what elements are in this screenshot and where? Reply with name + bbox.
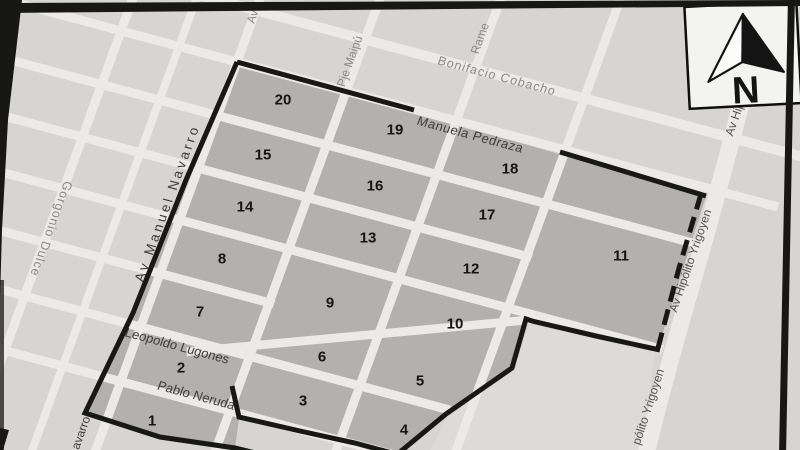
compass: N: [684, 1, 800, 115]
zone-number-18: 18: [502, 161, 519, 178]
map-canvas: Bonifacio Cobacho Manuela Pedraza Leopol…: [0, 0, 800, 450]
zone-number-11: 11: [613, 248, 629, 265]
zone-number-7: 7: [196, 304, 204, 321]
zone-number-13: 13: [360, 230, 377, 247]
photo-edge-left-lower: [0, 280, 4, 450]
zone-number-14: 14: [237, 199, 254, 216]
zone-number-15: 15: [255, 147, 272, 164]
zone-number-16: 16: [367, 178, 384, 195]
zone-number-20: 20: [275, 92, 292, 109]
zone-number-17: 17: [479, 207, 496, 224]
zone-number-4: 4: [400, 422, 409, 439]
zone-number-5: 5: [416, 373, 424, 390]
city-map-photo: Bonifacio Cobacho Manuela Pedraza Leopol…: [0, 0, 800, 450]
zone-number-1: 1: [148, 413, 156, 430]
zone-number-2: 2: [177, 360, 185, 377]
zone-number-8: 8: [218, 251, 226, 268]
zone-number-19: 19: [387, 122, 404, 139]
compass-label: N: [731, 69, 761, 112]
zone-number-6: 6: [318, 349, 326, 366]
zone-number-12: 12: [463, 261, 480, 278]
zone-number-3: 3: [299, 393, 307, 410]
zone-number-9: 9: [326, 295, 334, 312]
zone-number-10: 10: [447, 316, 464, 333]
